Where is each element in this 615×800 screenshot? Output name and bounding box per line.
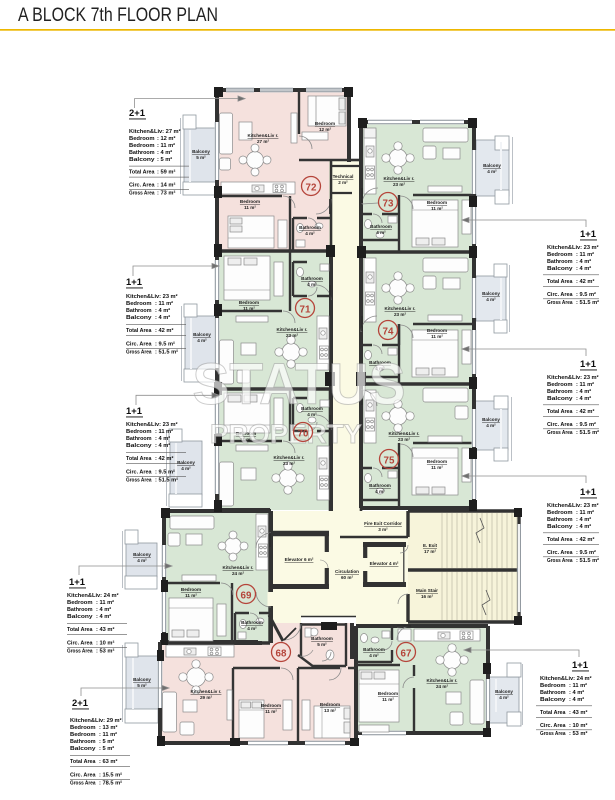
svg-text:Kitchen&Liv r.: Kitchen&Liv r.: [427, 678, 458, 683]
svg-text:Kitchen&Liv: 24 m²: Kitchen&Liv: 24 m²: [540, 675, 592, 682]
svg-text:23 m²: 23 m²: [283, 461, 295, 466]
svg-text:: 9.5 m²: : 9.5 m²: [576, 291, 596, 298]
svg-text:: 4 m²: : 4 m²: [96, 613, 111, 620]
svg-text:Circ. Area: Circ. Area: [540, 723, 566, 729]
svg-text:: 53 m²: : 53 m²: [96, 648, 114, 655]
svg-text:A BLOCK 7th FLOOR PLAN: A BLOCK 7th FLOOR PLAN: [18, 5, 218, 26]
svg-text:23 m²: 23 m²: [398, 437, 410, 442]
svg-text:: 9.5 m²: : 9.5 m²: [155, 341, 175, 348]
svg-text:16 m²: 16 m²: [421, 594, 433, 599]
svg-text:4 m²: 4 m²: [181, 466, 191, 471]
svg-text:4 m²: 4 m²: [375, 489, 385, 494]
svg-text:Kitchen&Liv r.: Kitchen&Liv r.: [274, 455, 305, 460]
svg-text:: 4 m²: : 4 m²: [576, 516, 591, 523]
svg-text:27 m²: 27 m²: [257, 139, 269, 144]
svg-text:Bedroom: Bedroom: [129, 143, 155, 149]
svg-text:: 78.5 m²: : 78.5 m²: [99, 780, 122, 787]
svg-text:Balcony: Balcony: [129, 157, 155, 163]
svg-text:75: 75: [384, 456, 395, 467]
svg-text:Total Area: Total Area: [547, 409, 573, 415]
svg-text:: 51.5 m²: : 51.5 m²: [576, 557, 599, 564]
svg-text:Technical: Technical: [333, 174, 354, 179]
svg-text:: 13 m²: : 13 m²: [99, 724, 117, 731]
svg-text:1+1: 1+1: [580, 358, 596, 369]
svg-text:Total Area: Total Area: [129, 170, 155, 176]
svg-text:11 m²: 11 m²: [431, 206, 443, 211]
svg-text:: 11 m²: : 11 m²: [576, 381, 594, 388]
svg-text:23 m²: 23 m²: [393, 182, 405, 187]
svg-text:: 5 m²: : 5 m²: [157, 156, 172, 163]
svg-text:Balcony: Balcony: [133, 552, 151, 557]
svg-text:Bedroom: Bedroom: [427, 200, 447, 205]
svg-text:: 9.5 m²: : 9.5 m²: [576, 549, 596, 556]
svg-text:24 m²: 24 m²: [436, 684, 448, 689]
svg-text:24 m²: 24 m²: [232, 571, 244, 576]
svg-text:: 42 m²: : 42 m²: [576, 536, 594, 543]
svg-text:Bedroom: Bedroom: [320, 702, 340, 707]
svg-text:Bathroom: Bathroom: [299, 225, 321, 230]
svg-text:: 10 m²: : 10 m²: [569, 722, 587, 729]
svg-text:Gross Area: Gross Area: [547, 300, 573, 306]
svg-text:Kitchen&Liv: 23 m²: Kitchen&Liv: 23 m²: [126, 293, 178, 300]
svg-text:Gross Area: Gross Area: [547, 430, 573, 436]
svg-text:: 43 m²: : 43 m²: [96, 626, 114, 633]
svg-text:: 4 m²: : 4 m²: [155, 314, 170, 321]
svg-text:5 m²: 5 m²: [317, 642, 327, 647]
svg-text:Gross Area: Gross Area: [547, 558, 573, 564]
svg-text:: 42 m²: : 42 m²: [155, 455, 173, 462]
svg-text:67: 67: [401, 649, 412, 660]
svg-text:Balcony: Balcony: [547, 524, 573, 530]
svg-text:69: 69: [241, 591, 252, 602]
svg-text:23 m²: 23 m²: [394, 312, 406, 317]
svg-text:Bedroom: Bedroom: [378, 691, 398, 696]
svg-text:STATUS: STATUS: [193, 352, 406, 417]
svg-text:11 m²: 11 m²: [382, 697, 394, 702]
svg-text:71: 71: [300, 305, 311, 316]
svg-text:Kitchen&Liv: 23 m²: Kitchen&Liv: 23 m²: [126, 421, 178, 428]
svg-text:Circ. Area: Circ. Area: [126, 470, 152, 476]
svg-text:Bathroom: Bathroom: [547, 259, 573, 265]
svg-text:: 4 m²: : 4 m²: [576, 523, 591, 530]
svg-text:Bathroom: Bathroom: [311, 636, 333, 641]
svg-text:: 59 m²: : 59 m²: [157, 169, 175, 176]
svg-text:13 m²: 13 m²: [324, 708, 336, 713]
svg-text:29 m²: 29 m²: [200, 695, 212, 700]
svg-text:: 12 m²: : 12 m²: [157, 135, 175, 142]
svg-text:: 11 m²: : 11 m²: [576, 251, 594, 258]
svg-text:74: 74: [383, 327, 394, 338]
svg-text:: 5 m²: : 5 m²: [99, 745, 114, 752]
svg-text:2+1: 2+1: [129, 107, 145, 118]
svg-text:: 4 m²: : 4 m²: [569, 696, 584, 703]
svg-text:Bathroom: Bathroom: [126, 308, 152, 314]
svg-text:Bathroom: Bathroom: [301, 276, 323, 281]
svg-text:Balcony: Balcony: [70, 746, 96, 752]
svg-text:Balcony: Balcony: [547, 396, 573, 402]
svg-text:Kitchen&Liv r.: Kitchen&Liv r.: [248, 133, 279, 138]
svg-text:Bedroom: Bedroom: [181, 587, 201, 592]
svg-text:: 4 m²: : 4 m²: [155, 307, 170, 314]
svg-text:Bedroom: Bedroom: [547, 382, 573, 388]
svg-text:: 4 m²: : 4 m²: [155, 442, 170, 449]
svg-text:Bedroom: Bedroom: [547, 510, 573, 516]
svg-text:Total Area: Total Area: [70, 759, 96, 765]
svg-text:Bathroom: Bathroom: [547, 389, 573, 395]
svg-text:Gross Area: Gross Area: [126, 350, 152, 356]
svg-text:11 m²: 11 m²: [243, 306, 255, 311]
svg-text:Bathroom: Bathroom: [70, 739, 96, 745]
svg-text:: 11 m²: : 11 m²: [157, 142, 175, 149]
svg-text:: 4 m²: : 4 m²: [155, 435, 170, 442]
svg-text:4 m²: 4 m²: [499, 695, 509, 700]
svg-text:: 42 m²: : 42 m²: [576, 278, 594, 285]
svg-text:Bedroom: Bedroom: [547, 252, 573, 258]
svg-text:Bedroom: Bedroom: [126, 429, 152, 435]
svg-text:Bathroom: Bathroom: [67, 607, 93, 613]
svg-text:11 m²: 11 m²: [431, 465, 443, 470]
svg-text:Circ. Area: Circ. Area: [129, 183, 155, 189]
svg-text:72: 72: [306, 183, 317, 194]
svg-text:: 4 m²: : 4 m²: [157, 149, 172, 156]
svg-text:1+1: 1+1: [126, 405, 142, 416]
svg-text:23 m²: 23 m²: [286, 333, 298, 338]
svg-text:4 m²: 4 m²: [247, 626, 257, 631]
svg-text:Bathroom: Bathroom: [129, 150, 155, 156]
svg-text:Circ. Area: Circ. Area: [547, 292, 573, 298]
svg-text:: 51.5 m²: : 51.5 m²: [155, 349, 178, 356]
svg-text:68: 68: [276, 649, 287, 660]
svg-text:4 m²: 4 m²: [486, 423, 496, 428]
svg-text:Kitchen&Liv: 23 m²: Kitchen&Liv: 23 m²: [547, 374, 599, 381]
svg-text:: 11 m²: : 11 m²: [99, 731, 117, 738]
svg-text:Kitchen&Liv r.: Kitchen&Liv r.: [385, 306, 416, 311]
svg-text:: 4 m²: : 4 m²: [576, 395, 591, 402]
svg-text:: 51.5 m²: : 51.5 m²: [155, 477, 178, 484]
svg-text:: 53 m²: : 53 m²: [569, 730, 587, 737]
svg-text:4 m²: 4 m²: [137, 558, 147, 563]
svg-text:Bathroom: Bathroom: [369, 483, 391, 488]
svg-text:3 m²: 3 m²: [378, 527, 388, 532]
svg-text:: 4 m²: : 4 m²: [576, 388, 591, 395]
svg-text:11 m²: 11 m²: [185, 593, 197, 598]
svg-text:Bedroom: Bedroom: [427, 328, 447, 333]
svg-text:Balcony: Balcony: [67, 614, 93, 620]
svg-text:: 11 m²: : 11 m²: [155, 300, 173, 307]
svg-text:: 14 m²: : 14 m²: [157, 182, 175, 189]
svg-text:Gross Area: Gross Area: [67, 649, 93, 655]
svg-text:Balcony: Balcony: [483, 163, 501, 168]
svg-text:: 4 m²: : 4 m²: [96, 606, 111, 613]
svg-text:Kitchen&Liv: 23 m²: Kitchen&Liv: 23 m²: [547, 244, 599, 251]
svg-text:Circ. Area: Circ. Area: [67, 641, 93, 647]
svg-text:Balcony: Balcony: [192, 149, 210, 154]
svg-text:Balcony: Balcony: [126, 443, 152, 449]
svg-text:Balcony: Balcony: [482, 417, 500, 422]
svg-text:: 11 m²: : 11 m²: [569, 682, 587, 689]
svg-text:Kitchen&Liv r.: Kitchen&Liv r.: [384, 176, 415, 181]
svg-text:Balcony: Balcony: [495, 689, 513, 694]
svg-text:Total Area: Total Area: [126, 456, 152, 462]
svg-text:Fire Exit Corridor: Fire Exit Corridor: [364, 521, 402, 526]
svg-text:Kitchen&Liv: 29 m²: Kitchen&Liv: 29 m²: [70, 717, 122, 724]
svg-text:Bathroom: Bathroom: [547, 517, 573, 523]
svg-text:4 m²: 4 m²: [486, 297, 496, 302]
svg-text:Bedroom: Bedroom: [261, 703, 281, 708]
svg-text:: 63 m²: : 63 m²: [99, 758, 117, 765]
svg-text:12 m²: 12 m²: [319, 127, 331, 132]
svg-text:Total Area: Total Area: [67, 627, 93, 633]
svg-text:Bathroom: Bathroom: [241, 620, 263, 625]
svg-text:1+1: 1+1: [580, 228, 596, 239]
svg-text:Kitchen&Liv: 23 m²: Kitchen&Liv: 23 m²: [547, 502, 599, 509]
svg-text:Gross Area: Gross Area: [126, 478, 152, 484]
svg-text:Balcony: Balcony: [177, 460, 195, 465]
svg-text:1+1: 1+1: [126, 276, 142, 287]
svg-text:Elevator 6 m²: Elevator 6 m²: [285, 557, 314, 562]
svg-text:4 m²: 4 m²: [197, 338, 207, 343]
svg-text:Bathroom: Bathroom: [363, 647, 385, 652]
svg-text:: 9.5 m²: : 9.5 m²: [576, 421, 596, 428]
svg-text:Circ. Area: Circ. Area: [547, 422, 573, 428]
svg-text:: 42 m²: : 42 m²: [576, 408, 594, 415]
svg-text:: 42 m²: : 42 m²: [155, 327, 173, 334]
svg-text:: 51.5 m²: : 51.5 m²: [576, 429, 599, 436]
svg-text:Bedroom: Bedroom: [70, 725, 96, 731]
svg-text:Bedroom: Bedroom: [67, 600, 93, 606]
svg-text:1+1: 1+1: [580, 486, 596, 497]
svg-text:Bedroom: Bedroom: [126, 301, 152, 307]
svg-text:Circ. Area: Circ. Area: [70, 773, 96, 779]
svg-text:: 10 m²: : 10 m²: [96, 640, 114, 647]
svg-text:Circ. Area: Circ. Area: [126, 342, 152, 348]
svg-text:11 m²: 11 m²: [431, 334, 443, 339]
svg-text:: 73 m²: : 73 m²: [157, 190, 175, 197]
svg-text:1+1: 1+1: [572, 659, 588, 670]
svg-text:Main Stair: Main Stair: [416, 588, 438, 593]
svg-text:Balcony: Balcony: [126, 315, 152, 321]
svg-text:2+1: 2+1: [72, 697, 88, 708]
svg-text:Bedroom: Bedroom: [240, 199, 260, 204]
svg-text:Bathroom: Bathroom: [370, 224, 392, 229]
svg-text:Elevator 4 m²: Elevator 4 m²: [370, 561, 399, 566]
svg-text:Bedroom: Bedroom: [540, 683, 566, 689]
svg-text:4 m²: 4 m²: [376, 230, 386, 235]
svg-text:Balcony: Balcony: [482, 291, 500, 296]
svg-text:: 43 m²: : 43 m²: [569, 709, 587, 716]
svg-text:4 m²: 4 m²: [369, 653, 379, 658]
svg-text:4 m²: 4 m²: [305, 231, 315, 236]
svg-text:Bedroom: Bedroom: [70, 732, 96, 738]
svg-text:Balcony: Balcony: [547, 266, 573, 272]
svg-text:Gross Area: Gross Area: [129, 191, 155, 197]
svg-text:: 4 m²: : 4 m²: [576, 265, 591, 272]
svg-text:1+1: 1+1: [69, 576, 85, 587]
svg-text:Balcony: Balcony: [540, 697, 566, 703]
svg-text:Bedroom: Bedroom: [239, 300, 259, 305]
svg-text:: 4 m²: : 4 m²: [569, 689, 584, 696]
svg-text:2 m²: 2 m²: [338, 180, 348, 185]
svg-text:17 m²: 17 m²: [424, 549, 436, 554]
svg-text:Bathroom: Bathroom: [540, 690, 566, 696]
svg-text:Total Area: Total Area: [126, 328, 152, 334]
svg-text:: 11 m²: : 11 m²: [576, 509, 594, 516]
svg-text:Total Area: Total Area: [540, 710, 566, 716]
svg-text:Kitchen&Liv r.: Kitchen&Liv r.: [191, 689, 222, 694]
svg-text:60 m²: 60 m²: [341, 575, 353, 580]
svg-text:PROPERTY: PROPERTY: [210, 419, 362, 449]
svg-text:Gross Area: Gross Area: [540, 731, 566, 737]
svg-text:11 m²: 11 m²: [265, 709, 277, 714]
svg-text:: 51.5 m²: : 51.5 m²: [576, 299, 599, 306]
svg-text:Bedroom: Bedroom: [315, 121, 335, 126]
svg-text:70: 70: [298, 429, 309, 440]
svg-text:Kitchen&Liv r.: Kitchen&Liv r.: [223, 565, 254, 570]
svg-text:Balcony: Balcony: [193, 332, 211, 337]
svg-text:Balcony: Balcony: [133, 677, 151, 682]
svg-text:Circulation: Circulation: [335, 569, 359, 574]
svg-text:: 11 m²: : 11 m²: [155, 428, 173, 435]
svg-text:: 4 m²: : 4 m²: [576, 258, 591, 265]
svg-text:Gross Area: Gross Area: [70, 781, 96, 787]
svg-text:Kitchen&Liv: 24 m²: Kitchen&Liv: 24 m²: [67, 592, 119, 599]
svg-text:11 m²: 11 m²: [244, 205, 256, 210]
svg-text:E. Exit: E. Exit: [423, 543, 438, 548]
svg-text:: 15.5 m²: : 15.5 m²: [99, 772, 122, 779]
svg-text:: 5 m²: : 5 m²: [99, 738, 114, 745]
svg-text:Bedroom: Bedroom: [129, 136, 155, 142]
svg-text:4 m²: 4 m²: [307, 282, 317, 287]
svg-text:Total Area: Total Area: [547, 279, 573, 285]
svg-text:: 9.5 m²: : 9.5 m²: [155, 469, 175, 476]
svg-text:Kitchen&Liv r.: Kitchen&Liv r.: [389, 431, 420, 436]
svg-text:4 m²: 4 m²: [487, 169, 497, 174]
svg-text:Bedroom: Bedroom: [427, 459, 447, 464]
svg-text:5 m²: 5 m²: [137, 683, 147, 688]
svg-text:73: 73: [383, 199, 394, 210]
svg-text:: 11 m²: : 11 m²: [96, 599, 114, 606]
svg-text:Bathroom: Bathroom: [126, 436, 152, 442]
svg-text:Kitchen&Liv r.: Kitchen&Liv r.: [277, 327, 308, 332]
svg-text:Circ. Area: Circ. Area: [547, 550, 573, 556]
svg-text:Total Area: Total Area: [547, 537, 573, 543]
svg-text:Kitchen&Liv: 27 m²: Kitchen&Liv: 27 m²: [129, 128, 181, 135]
svg-text:5 m²: 5 m²: [196, 155, 206, 160]
